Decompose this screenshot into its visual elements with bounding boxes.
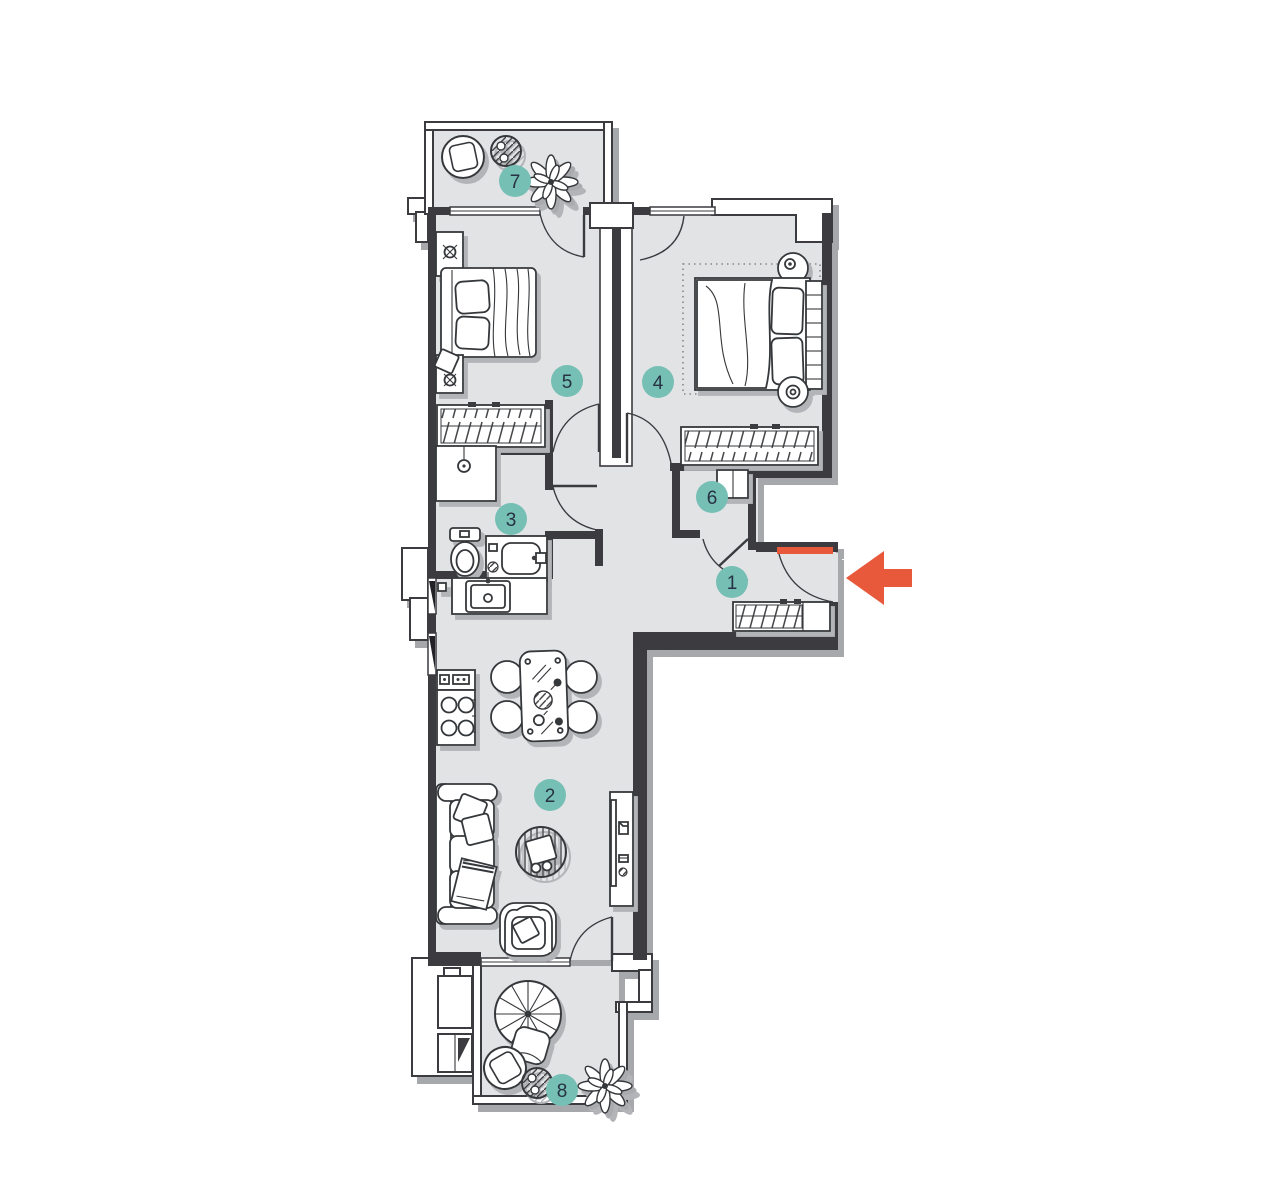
nightstand-icon: [778, 377, 808, 407]
hallway-wardrobe-icon: [733, 599, 830, 631]
side-table-icon: [491, 136, 521, 166]
room-marker-1: 1: [716, 566, 748, 598]
svg-text:5: 5: [562, 372, 573, 393]
floor-drain: [438, 583, 446, 591]
window-bedroom-5: [450, 207, 540, 215]
armchair-icon: [500, 903, 556, 956]
double-bed-icon: [441, 268, 536, 357]
dining-chair-icon: [565, 661, 597, 693]
window-kitchen-upper: [428, 578, 436, 614]
bedroom4-set: [681, 253, 822, 465]
floor-plan: 1 2 3 4 5 6 7 8: [0, 0, 1280, 1193]
dining-table-icon: [519, 650, 568, 742]
dining-chair-icon: [491, 701, 523, 733]
nightstand-icon: [434, 349, 463, 393]
lounge-chair-icon: [442, 136, 484, 178]
entrance-arrow-icon: [846, 551, 912, 605]
room-marker-8: 8: [546, 1074, 578, 1106]
room-marker-4: 4: [642, 366, 674, 398]
svg-text:3: 3: [506, 510, 517, 531]
room-marker-6: 6: [696, 481, 728, 513]
room-marker-2: 2: [534, 779, 566, 811]
kitchen-sink-icon: [452, 572, 547, 614]
adjacent-structure-left: [402, 548, 428, 640]
entrance-door-leaf: [777, 547, 833, 554]
room-marker-5: 5: [551, 365, 583, 397]
sofa-icon: [436, 784, 497, 924]
adjacent-structure-bottom-left: [412, 958, 474, 1076]
svg-text:4: 4: [653, 373, 664, 394]
window-living-room: [481, 958, 570, 966]
wardrobe-icon: [681, 424, 818, 465]
window-kitchen-lower: [428, 633, 436, 675]
vanity-sink-icon: [486, 536, 547, 581]
coffee-table-icon: [516, 827, 566, 877]
dining-chair-icon: [565, 701, 597, 733]
dining-chair-icon: [491, 661, 523, 693]
svg-text:8: 8: [557, 1081, 568, 1102]
svg-text:6: 6: [707, 488, 718, 509]
window-bedroom-4: [650, 207, 715, 215]
toilet-icon: [450, 528, 480, 576]
room-marker-7: 7: [499, 165, 531, 197]
room-marker-3: 3: [495, 503, 527, 535]
shower-icon: [436, 446, 496, 501]
svg-text:1: 1: [727, 573, 738, 594]
double-bed-icon: [695, 278, 822, 390]
wardrobe-icon: [437, 402, 545, 447]
tv-stand-icon: [610, 792, 633, 906]
stove-icon: [437, 670, 476, 745]
svg-text:2: 2: [545, 786, 556, 807]
floor-plan-canvas: 1 2 3 4 5 6 7 8: [0, 0, 1280, 1193]
svg-text:7: 7: [510, 172, 521, 193]
